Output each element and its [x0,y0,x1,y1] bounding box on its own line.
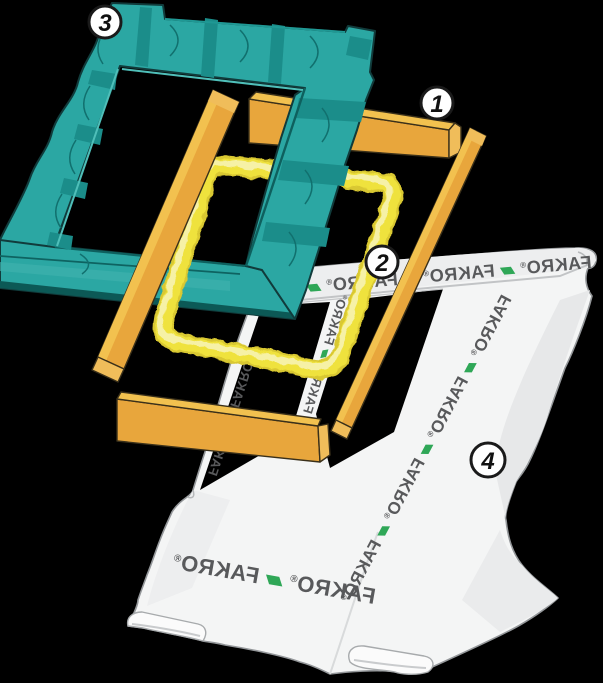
svg-text:4: 4 [480,448,494,475]
badge-4: 4 [471,443,505,477]
svg-text:1: 1 [430,91,443,118]
diagram-stage: FAKRO® ▰ FAKRO® ▰ FAKRO® ▰ FAKRO®FAKRO® … [0,0,603,683]
badge-3: 3 [89,6,121,38]
badge-2: 2 [366,246,398,278]
badge-1: 1 [421,87,453,119]
svg-text:2: 2 [374,250,389,277]
exploded-kit-illustration: FAKRO® ▰ FAKRO® ▰ FAKRO® ▰ FAKRO®FAKRO® … [0,0,603,683]
svg-text:3: 3 [98,10,112,37]
